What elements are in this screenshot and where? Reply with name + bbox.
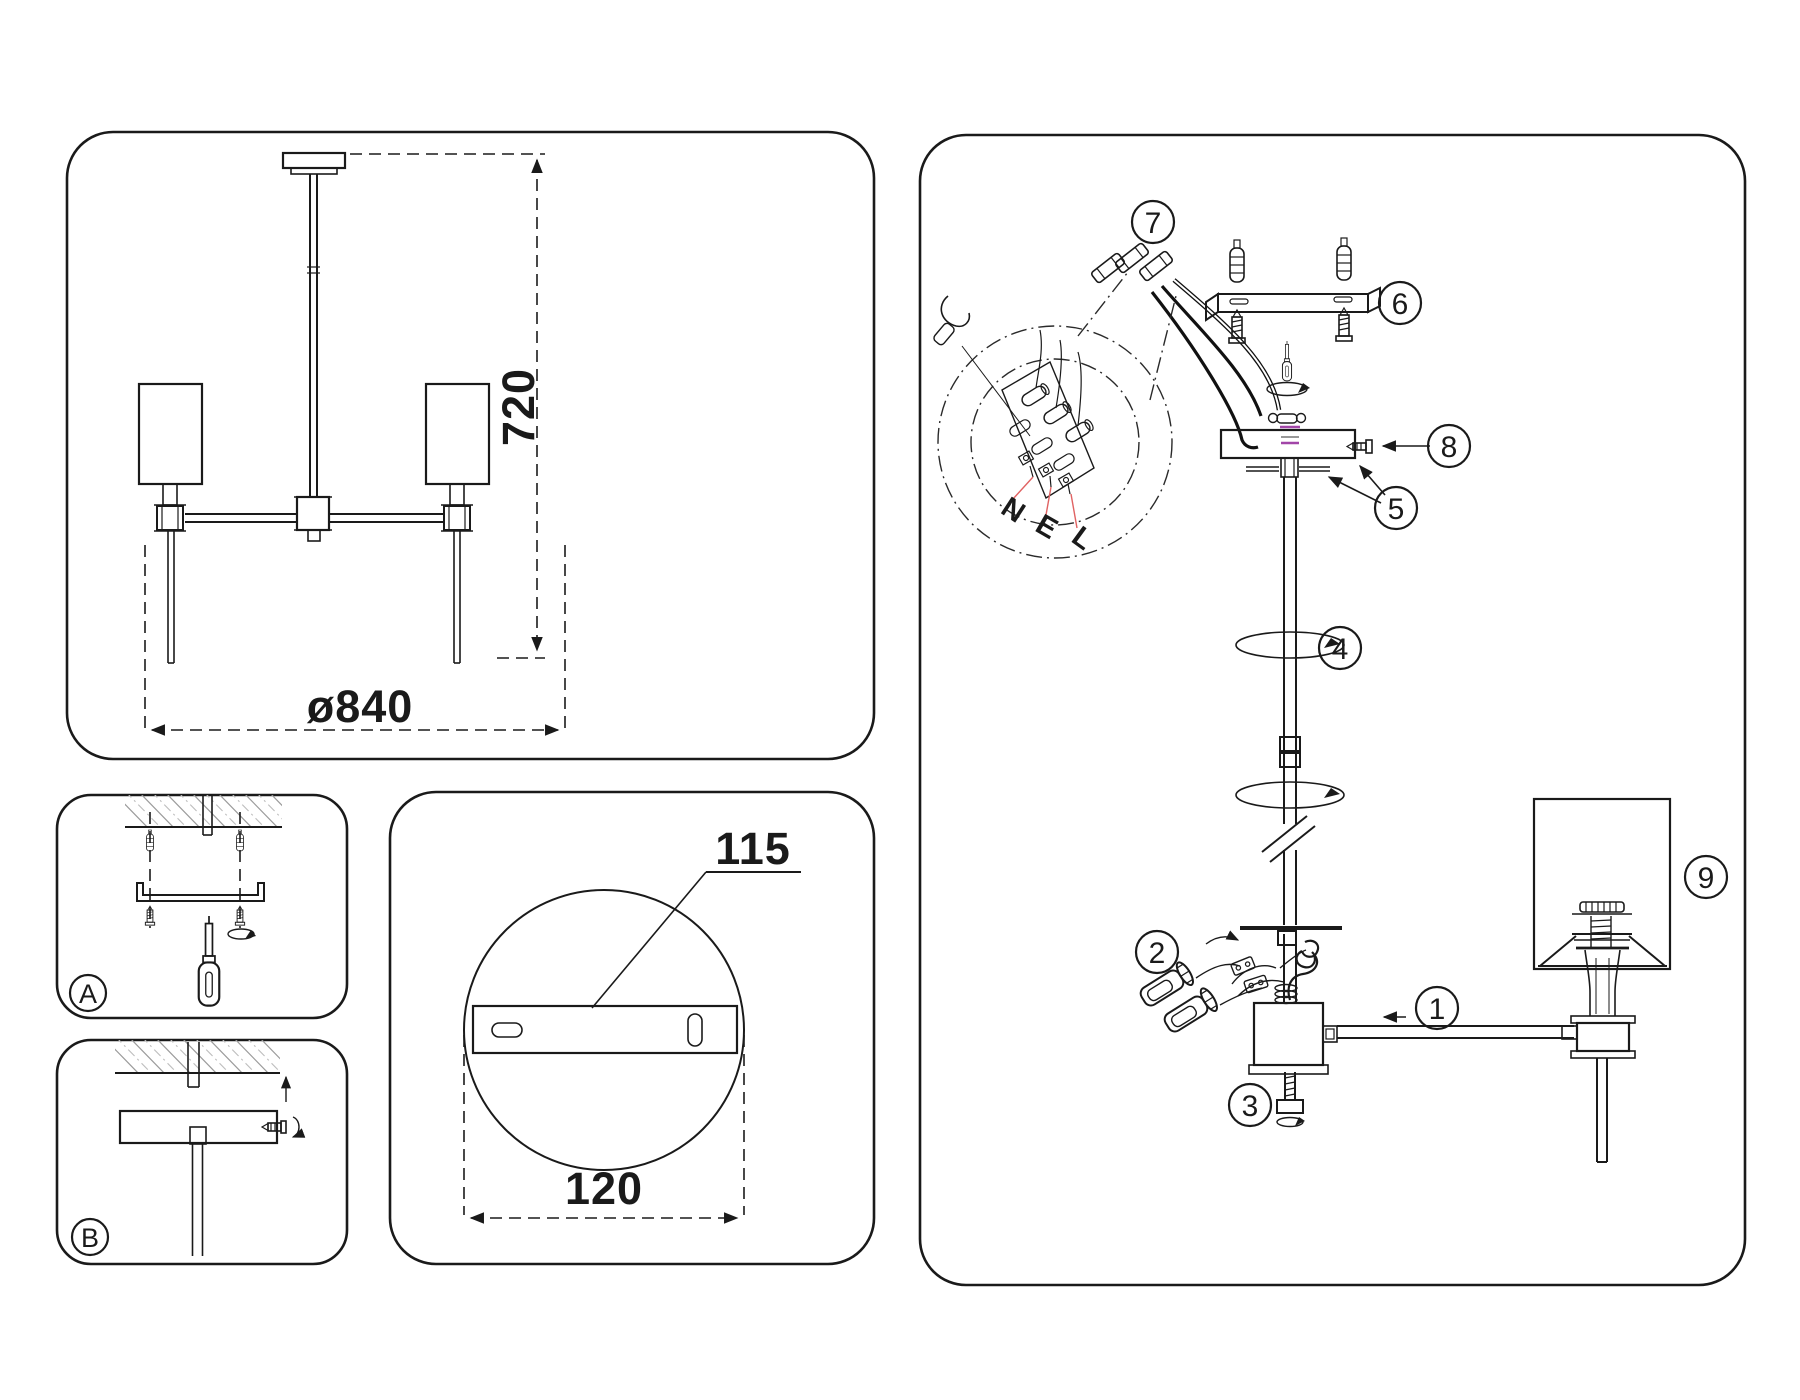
screw-icon <box>1229 310 1245 343</box>
panel-step-a <box>57 795 347 1018</box>
wall-anchor-icon <box>1337 238 1351 280</box>
callout-8-label: 8 <box>1441 431 1458 464</box>
lamp-holder <box>1160 986 1220 1037</box>
panel-overall-dimensions <box>67 132 874 759</box>
callout-7: 7 <box>1132 201 1174 243</box>
callout-3-label: 3 <box>1242 1090 1259 1123</box>
callout-5: 5 <box>1375 487 1417 529</box>
instruction-sheet: 720 ø840 <box>0 0 1800 1400</box>
assembly-figure: N E L <box>932 201 1727 1162</box>
knurled-ring <box>1572 902 1632 914</box>
step-a-label: A <box>79 979 97 1009</box>
callout-9-label: 9 <box>1698 862 1715 895</box>
wiring-detail-bubble: N E L <box>932 272 1176 558</box>
wire-earth-label: E <box>1030 509 1063 546</box>
center-rod <box>1236 477 1344 1003</box>
wire-neutral-label: N <box>995 491 1030 529</box>
hub-assembly <box>1249 1003 1574 1127</box>
right-arm-holder <box>441 505 473 531</box>
center-hub <box>297 497 329 530</box>
chandelier-front-view: 720 ø840 <box>139 153 565 735</box>
step-b-figure: B <box>72 1036 299 1256</box>
lamp-holder <box>1136 960 1196 1011</box>
mounting-bracket-a <box>137 883 264 901</box>
rotate-icon <box>228 929 256 939</box>
cord-grip <box>1277 414 1297 423</box>
callout5-arrow <box>1360 466 1385 495</box>
dim-plate-width-label: 120 <box>565 1163 643 1214</box>
shade-assembly <box>1534 799 1670 1162</box>
left-drop-rod <box>168 531 174 663</box>
screwdriver-icon <box>1282 341 1291 381</box>
left-arm-holder <box>154 505 186 531</box>
callout-5-label: 5 <box>1388 493 1405 526</box>
step-a-badge: A <box>70 975 106 1011</box>
step-a-figure: A <box>70 791 308 1011</box>
callout-9: 9 <box>1685 856 1727 898</box>
ceiling-hatch-b <box>102 1036 298 1077</box>
callout-2-label: 2 <box>1149 937 1166 970</box>
callout-6: 6 <box>1379 282 1421 324</box>
dim-diameter-label: ø840 <box>307 681 414 732</box>
side-screw-icon <box>1347 440 1430 453</box>
canopy-assembly <box>1221 414 1355 478</box>
terminal-block-detail <box>1002 330 1095 498</box>
wire-connector <box>1231 956 1256 975</box>
hook-icon <box>932 296 1030 436</box>
socket-cup <box>1585 950 1620 1016</box>
dimension-diameter: ø840 <box>145 545 565 735</box>
slot-horizontal <box>492 1023 522 1037</box>
dimension-height: 720 <box>350 154 545 658</box>
dim-height-label: 720 <box>493 368 544 446</box>
callout-1: 1 <box>1416 987 1458 1029</box>
right-shade <box>426 384 489 484</box>
ceiling-bracket <box>1206 288 1380 320</box>
s-hook-icon <box>1302 941 1318 957</box>
mounting-plate-figure: 115 120 <box>464 823 801 1218</box>
side-screw-icon <box>262 1117 299 1137</box>
callout-2: 2 <box>1136 931 1178 973</box>
dim-plate-length-label: 115 <box>715 823 791 874</box>
callout-6-label: 6 <box>1392 288 1409 321</box>
slot-vertical <box>688 1014 702 1046</box>
callout-8: 8 <box>1428 425 1470 467</box>
panel-assembly <box>920 135 1745 1285</box>
shade <box>1534 799 1670 969</box>
threaded-socket <box>1591 916 1611 948</box>
right-drop-rod <box>454 531 460 663</box>
diagram-canvas: 720 ø840 <box>0 0 1800 1400</box>
left-shade <box>139 384 202 484</box>
callout-1-label: 1 <box>1429 993 1446 1026</box>
ceiling-plate <box>283 153 345 168</box>
step-b-badge: B <box>72 1219 108 1255</box>
hub-body <box>1254 1003 1323 1065</box>
terminal-connectors <box>1091 242 1174 283</box>
screwdriver-icon <box>199 916 220 1006</box>
callout-7-label: 7 <box>1145 207 1162 240</box>
wall-anchor-icon <box>1230 240 1244 282</box>
ceiling-hatch-a <box>112 791 308 832</box>
callout-3: 3 <box>1229 1084 1271 1126</box>
stem-nut <box>1277 1100 1303 1113</box>
wire-black <box>1162 286 1261 416</box>
callout-4-label: 4 <box>1332 633 1349 666</box>
step-b-label: B <box>81 1223 99 1253</box>
callout-4: 4 <box>1319 627 1361 669</box>
